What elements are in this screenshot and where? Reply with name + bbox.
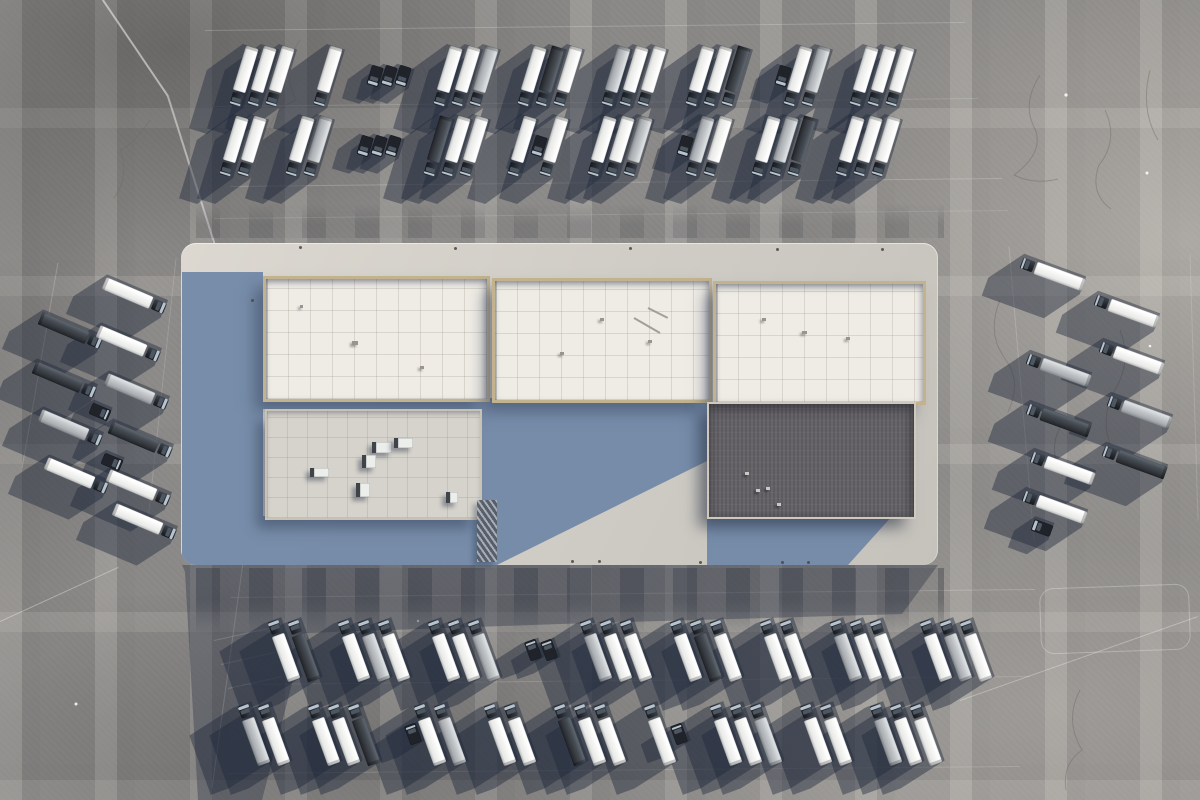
exposed-truss-strip [477,500,497,562]
rooftop-hvac-unit [362,455,376,468]
platform-edge-bolt [807,561,810,564]
dock-lane-stripes [196,204,944,238]
platform-edge-bolt [454,247,457,250]
platform-edge-bolt [781,561,784,564]
rooftop-hvac-unit [310,468,329,477]
roof-vent [648,340,652,343]
platform-edge-bolt [598,560,601,563]
platform-edge-bolt [571,560,574,563]
rooftop-hvac-unit [372,442,392,453]
platform-edge-bolt [299,246,302,249]
roof-vent [300,305,303,308]
roof-vent [766,487,770,490]
platform-edge-bolt [251,299,254,302]
rooftop-hvac-unit [356,483,370,497]
platform-edge-bolt [881,248,884,251]
rooftop-hvac-unit [394,438,413,448]
roof-vent [846,337,850,340]
roof-vent [560,352,564,355]
roof-vent [352,341,358,345]
platform-edge-bolt [629,247,632,250]
platform-edge-bolt [699,561,702,564]
roof-vent [777,503,781,506]
roof-section-b [492,278,712,403]
aerial-scene [0,0,1200,800]
roof-vent [762,318,766,321]
roof-vent [802,331,807,334]
roof-section-dark [707,402,916,519]
roof-vent [756,489,760,492]
roof-section-c [713,281,926,405]
platform-edge-bolt [776,248,779,251]
roof-section-a [263,276,490,402]
rooftop-hvac-unit [446,492,458,503]
roof-vent [600,318,604,321]
lot-marking-outline [1039,583,1191,654]
roof-vent [420,366,424,369]
roof-vent [745,472,749,475]
